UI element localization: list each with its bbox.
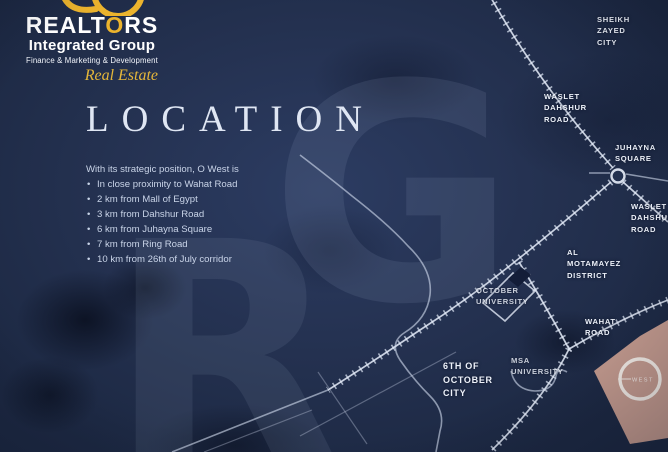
road-grid-3 <box>204 410 312 452</box>
location-bullet: 10 km from 26th of July corridor <box>86 252 301 267</box>
label-wahat-road: WAHAT ROAD <box>585 316 616 339</box>
realtors-wordmark-post: RS <box>124 12 158 38</box>
label-waslet-dahshur-road-2: WASLET DAHSHUR ROAD <box>631 201 668 235</box>
road-top-dahshur <box>490 0 613 168</box>
location-bullet: In close proximity to Wahat Road <box>86 177 301 192</box>
road-river-wavy <box>300 155 442 452</box>
label-sheikh-zayed-city: SHEIKH ZAYED CITY <box>597 14 630 48</box>
road-main-diagonal-core <box>328 182 611 390</box>
location-copy: With its strategic position, O West is I… <box>86 162 301 267</box>
realtors-wordmark-o: O <box>105 12 124 38</box>
realtors-wordmark: REALTORS <box>24 14 160 37</box>
realtors-logo: REALTORS Integrated Group Finance & Mark… <box>24 0 160 85</box>
location-bullet-list: In close proximity to Wahat Road 2 km fr… <box>86 177 301 267</box>
location-bullet: 2 km from Mall of Egypt <box>86 192 301 207</box>
label-6th-of-october-city: 6TH OF OCTOBER CITY <box>443 360 493 401</box>
location-intro: With its strategic position, O West is <box>86 162 301 177</box>
realtors-wordmark-pre: REALT <box>26 12 106 38</box>
road-main-diagonal <box>328 182 611 390</box>
label-al-motamayez-district: AL MOTAMAYEZ DISTRICT <box>567 247 621 281</box>
road-roundabout-east-stub <box>626 174 668 181</box>
location-bullet: 6 km from Juhayna Square <box>86 222 301 237</box>
brand-real-estate-script: Real Estate <box>24 67 160 85</box>
brand-subtitle: Integrated Group <box>24 37 160 54</box>
label-msa-university: MSA UNIVERSITY <box>511 355 564 378</box>
location-bullet: 7 km from Ring Road <box>86 237 301 252</box>
page-title: LOCATION <box>86 98 375 141</box>
road-grid-1 <box>300 352 456 436</box>
label-waslet-dahshur-road-1: WASLET DAHSHUR ROAD <box>544 91 587 125</box>
road-main-continuation <box>172 390 328 452</box>
label-october-university: OCTOBER UNIVERSITY <box>476 285 529 308</box>
location-bullet: 3 km from Dahshur Road <box>86 207 301 222</box>
label-juhayna-square: JUHAYNA SQUARE <box>615 142 656 165</box>
juhayna-roundabout <box>612 170 625 183</box>
brand-tagline: Finance & Marketing & Development <box>24 56 160 65</box>
location-map-page: G R <box>0 0 668 452</box>
owest-logo-word: WEST <box>632 378 654 384</box>
